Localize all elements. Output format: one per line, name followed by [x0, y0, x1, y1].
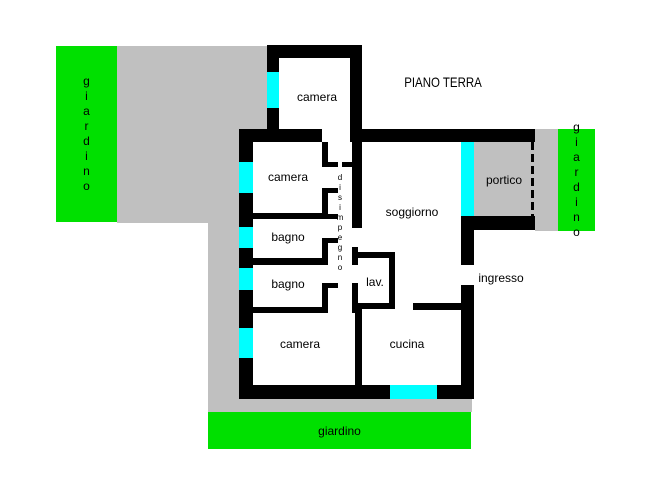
wall-segment: [389, 252, 395, 309]
wall-segment: [350, 58, 362, 129]
room-label-camera-top: camera: [297, 90, 337, 104]
garden-bottom-label: giardino: [318, 424, 361, 438]
garden-left-label-wrap: giardino: [56, 46, 117, 222]
room-label-disimpegno: disimpegno: [336, 173, 345, 273]
window: [239, 162, 253, 193]
wall-segment: [239, 129, 253, 162]
paved-terrace-area: [117, 129, 239, 223]
wall-segment: [352, 142, 362, 228]
wall-segment: [350, 129, 535, 142]
window: [239, 328, 253, 358]
wall-segment: [413, 303, 461, 310]
window: [267, 72, 279, 108]
room-label-ingresso: ingresso: [478, 271, 523, 285]
wall-segment: [253, 258, 328, 265]
room-label-bagno-bottom: bagno: [271, 277, 304, 291]
paved-bottom-strip: [208, 399, 472, 412]
wall-segment: [355, 309, 362, 385]
wall-segment: [253, 307, 328, 313]
room-label-lav: lav.: [366, 275, 384, 289]
window: [239, 227, 253, 248]
room-label-bagno-top: bagno: [271, 230, 304, 244]
garden-bottom-label-wrap: giardino: [208, 412, 471, 449]
room-label-camera-mid: camera: [268, 170, 308, 184]
disimpegno-label-wrap: disimpegno: [328, 142, 352, 304]
garden-right-label: giardino: [570, 120, 584, 240]
room-label-portico: portico: [486, 173, 522, 187]
paved-side-strip: [208, 223, 239, 399]
paved-terrace-area: [117, 46, 267, 129]
wall-segment: [461, 285, 474, 399]
wall-segment: [461, 216, 535, 230]
paved-right-strip: [535, 129, 558, 231]
wall-segment: [239, 193, 253, 227]
window: [390, 385, 437, 399]
garden-left-label: giardino: [80, 74, 94, 194]
wall-segment: [239, 385, 390, 399]
window: [461, 142, 474, 216]
portico-dashed-boundary: [531, 142, 534, 216]
wall-segment: [267, 108, 279, 129]
room-label-cucina: cucina: [390, 337, 425, 351]
wall-segment: [239, 290, 253, 328]
room-label-soggiorno: soggiorno: [386, 205, 439, 219]
floor-plan: PIANO TERRA camera camera bagno bagno ca…: [0, 0, 657, 500]
wall-segment: [239, 248, 253, 268]
wall-segment: [267, 58, 279, 72]
page-title: PIANO TERRA: [404, 74, 482, 90]
wall-segment: [253, 213, 322, 219]
room-label-camera-bottom: camera: [280, 337, 320, 351]
wall-segment: [267, 45, 362, 58]
window: [239, 268, 253, 290]
garden-right-label-wrap: giardino: [558, 129, 595, 231]
